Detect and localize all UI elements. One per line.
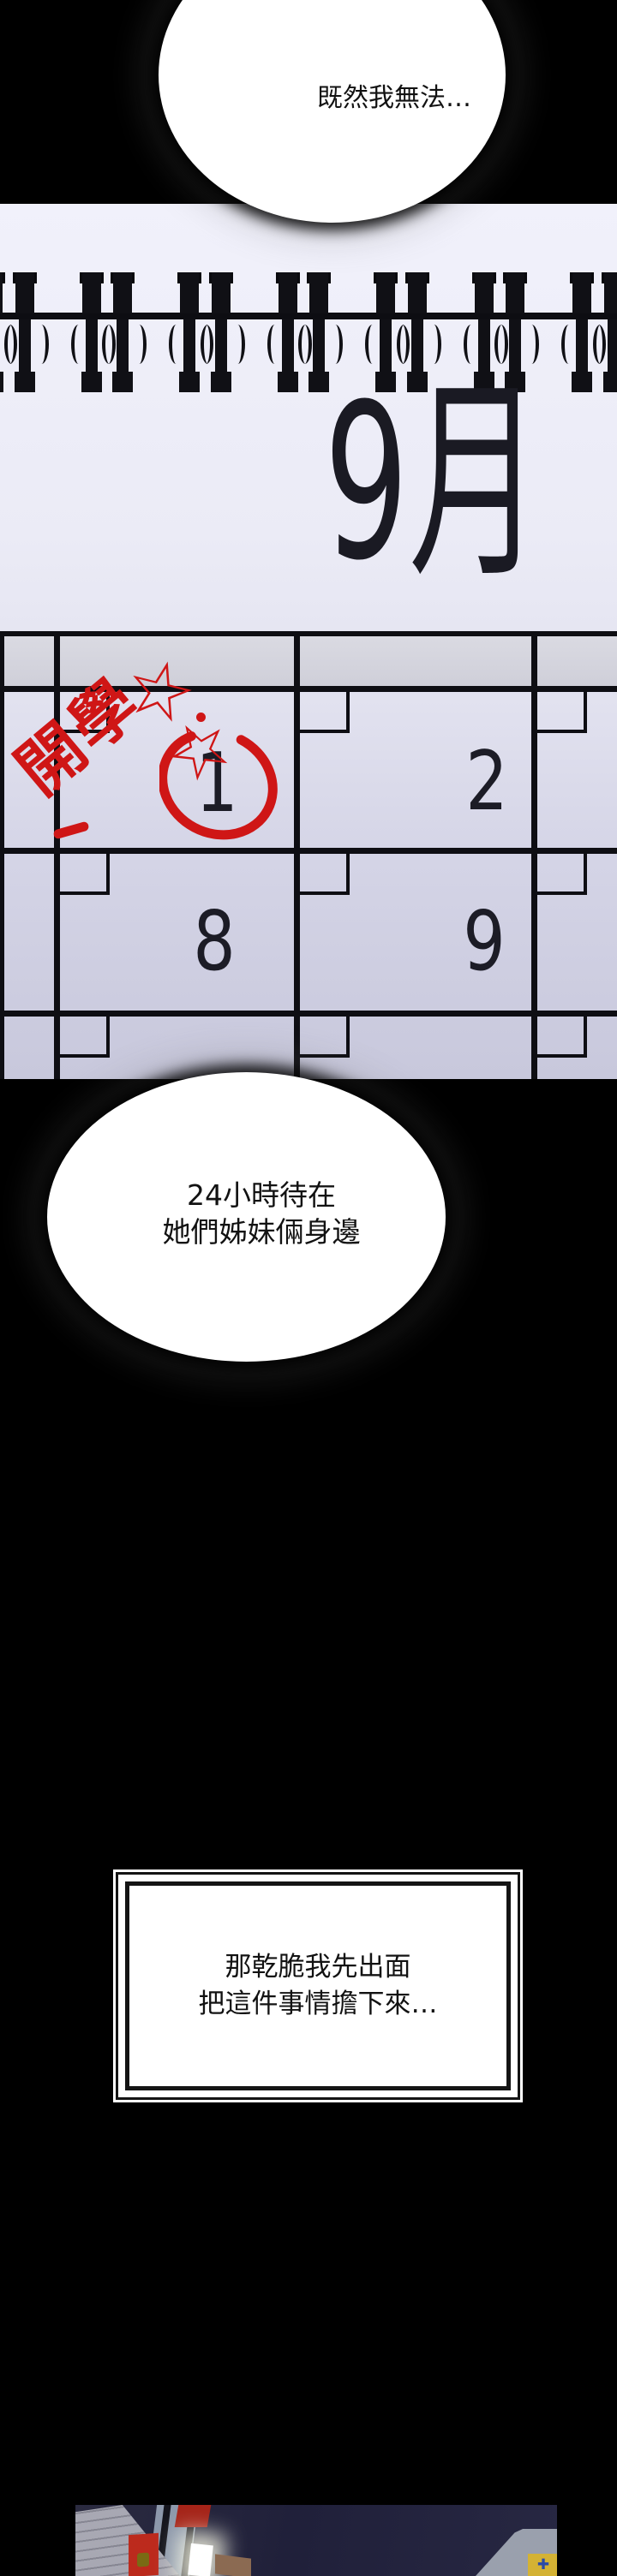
calendar-month-title: 9月 (324, 372, 542, 594)
red-signboard (129, 2533, 159, 2576)
calendar-cell-corner-box (537, 1017, 587, 1058)
street-scene-panel: ✚ (75, 2505, 557, 2576)
grid-line-row2 (0, 1011, 617, 1017)
red-dot-mark (196, 713, 206, 722)
comic-page: 9月 1 2 8 9 開學 ☆ ☆ 既然我無法… 24小時待在 她們姊妹倆身邊 (0, 0, 617, 2576)
grid-line-row1 (0, 848, 617, 854)
speech-bubble-middle-text: 24小時待在 她們姊妹倆身邊 (81, 1177, 441, 1250)
awning (215, 2554, 251, 2576)
calendar-cell-corner-box (60, 1017, 110, 1058)
caption-box-inner: 那乾脆我先出面 把這件事情擔下來… (125, 1881, 511, 2090)
calendar-cell-corner-box (537, 692, 587, 733)
caption-line: 那乾脆我先出面 (199, 1949, 438, 1986)
red-signboard (175, 2505, 212, 2527)
caption-line: 把這件事情擔下來… (199, 1986, 438, 2023)
calendar-cell-corner-box (300, 1017, 350, 1058)
calendar-date-2: 2 (430, 730, 542, 833)
speech-line: 她們姊妹倆身邊 (81, 1213, 441, 1250)
calendar-cell-corner-box (60, 854, 110, 895)
calendar-cell-corner-box (300, 854, 350, 895)
speech-line: 24小時待在 (81, 1177, 441, 1213)
grid-line-left-edge (0, 631, 4, 1079)
calendar-page: 9月 1 2 8 9 開學 ☆ ☆ (0, 204, 617, 1079)
calendar-date-8: 8 (158, 891, 270, 993)
lit-window (188, 2543, 213, 2576)
calendar-binding-bar (0, 313, 617, 319)
calendar-date-9: 9 (428, 891, 540, 993)
red-circle-annotation (159, 718, 279, 848)
grid-line-col3 (531, 631, 537, 1079)
grid-line-col2 (294, 631, 300, 1079)
calendar-cell-corner-box (300, 692, 350, 733)
calendar-cell-corner-box (537, 854, 587, 895)
caption-box-border: 那乾脆我先出面 把這件事情擔下來… (116, 1872, 520, 2100)
caption-box: 那乾脆我先出面 把這件事情擔下來… (113, 1869, 523, 2102)
yellow-signboard: ✚ (528, 2554, 557, 2576)
speech-bubble-top-text: 既然我無法… (283, 83, 506, 114)
